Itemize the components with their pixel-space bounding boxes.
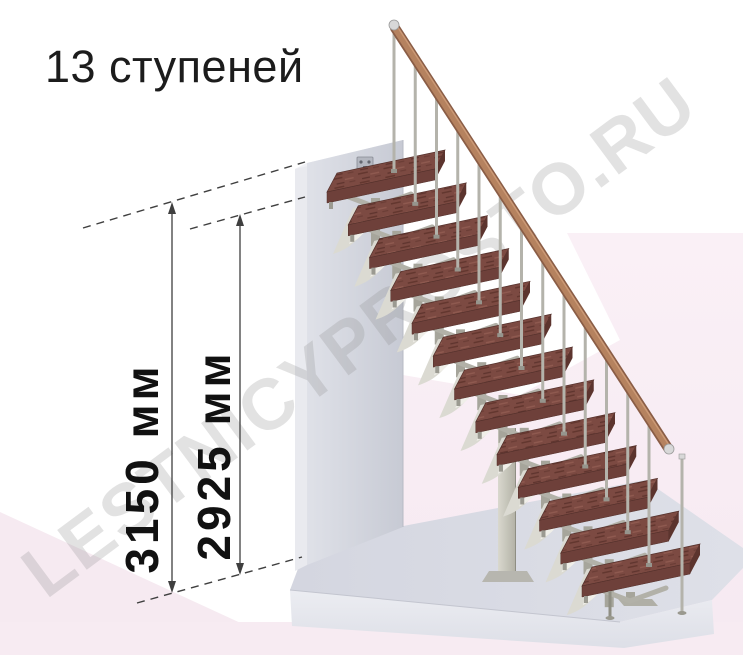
handrail-top-cap: [389, 20, 399, 30]
tread-tip-mount: [457, 399, 461, 406]
baluster-shoe: [476, 300, 482, 304]
tread-tip-mount: [520, 498, 524, 505]
tread-tip-mount: [542, 530, 546, 537]
baluster-shoe: [434, 235, 440, 239]
dimension-label-step-height: 2925 мм: [188, 349, 240, 560]
rod-cap: [679, 454, 685, 459]
baluster-shoe: [455, 268, 461, 272]
tread-tip-mount: [393, 301, 397, 308]
column-base-plate: [482, 571, 534, 582]
baluster-shoe: [561, 432, 567, 436]
baluster-shoe: [497, 333, 503, 337]
baluster-shoe: [625, 530, 631, 534]
tread-tip-mount: [499, 465, 503, 472]
tread-tip-mount: [584, 596, 588, 603]
tread-tip-mount: [563, 563, 567, 570]
stair-dimension-diagram: LESTNICYPROSTO.RU 3150 мм 2925 мм 13 сту…: [0, 0, 743, 655]
tread-tip-mount: [372, 268, 376, 275]
handrail-end-cap: [664, 444, 674, 454]
baluster-shoe: [604, 497, 610, 501]
tread-tip-mount: [478, 432, 482, 439]
tread-tip-mount: [329, 202, 333, 209]
baluster-shoe: [540, 399, 546, 403]
tread-tip-mount: [414, 333, 418, 340]
baluster-shoe: [582, 465, 588, 469]
tread-tip-mount: [435, 366, 439, 373]
baluster-shoe: [391, 169, 397, 173]
baluster-shoe: [519, 366, 525, 370]
dimension-label-total-height: 3150 мм: [116, 362, 168, 573]
baluster-shoe: [412, 202, 418, 206]
tread-tip-mount: [350, 235, 354, 242]
baluster-shoe: [646, 563, 652, 567]
page-title: 13 ступеней: [45, 41, 304, 92]
